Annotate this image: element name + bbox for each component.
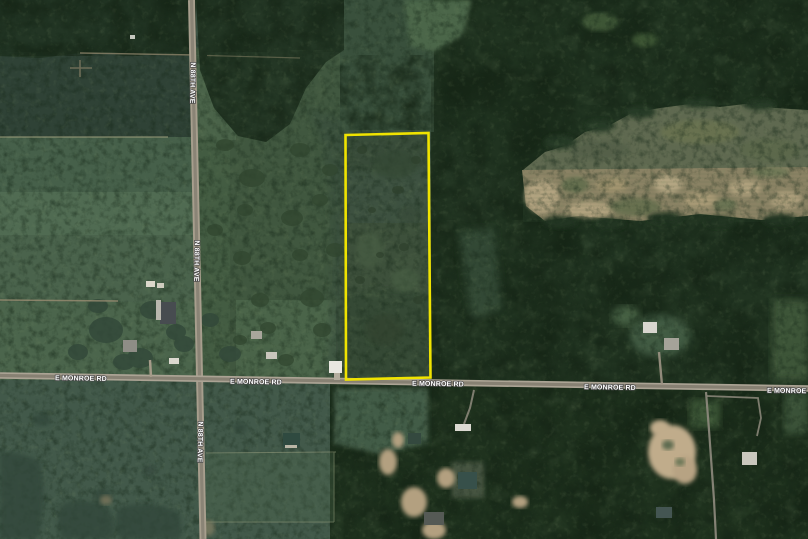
svg-text:N 88TH AVE: N 88TH AVE	[196, 421, 204, 462]
svg-text:E MONROE RD: E MONROE RD	[230, 379, 282, 387]
svg-text:E MONROE RD: E MONROE RD	[584, 384, 636, 392]
svg-text:E MONROE RD: E MONROE RD	[767, 388, 808, 396]
svg-text:N 88TH AVE: N 88TH AVE	[188, 62, 196, 103]
svg-text:E MONROE RD: E MONROE RD	[412, 381, 464, 389]
svg-text:E MONROE RD: E MONROE RD	[55, 375, 107, 383]
svg-text:N 88TH AVE: N 88TH AVE	[192, 240, 200, 281]
